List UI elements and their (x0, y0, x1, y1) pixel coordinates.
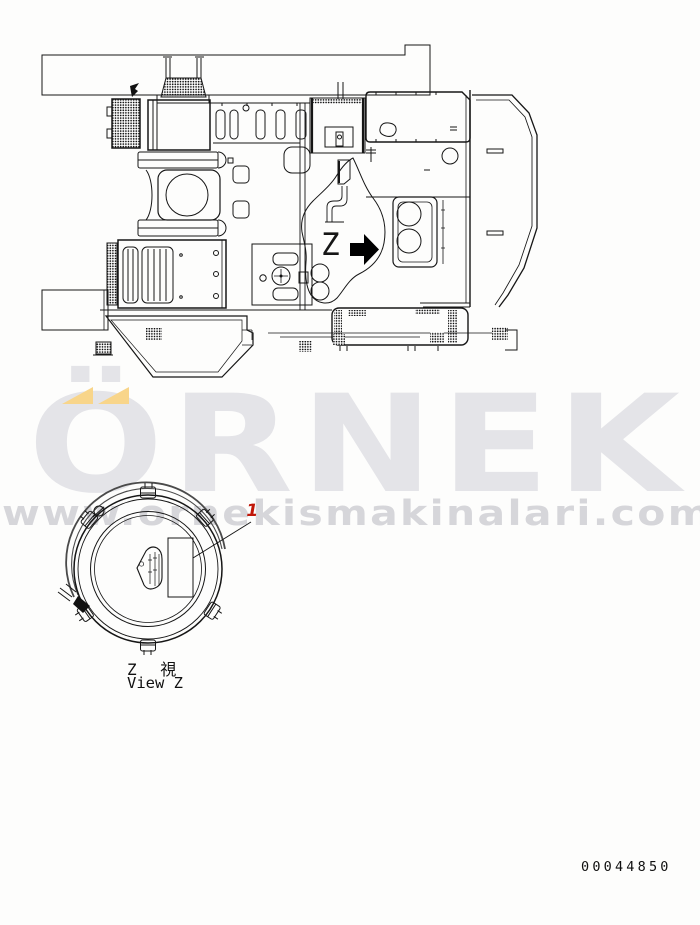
catalog-page: ÖRNEK www.ornekismakinalari.com.tr (0, 0, 700, 925)
item-1-plate (168, 538, 193, 597)
z-direction-arrow (350, 234, 379, 265)
brand-umlaut-triangle-right (98, 387, 129, 404)
technical-drawing (0, 0, 700, 925)
document-number: 00044850 (581, 859, 672, 875)
z-view-marker: Z (321, 227, 340, 263)
callout-leader-line (193, 522, 251, 558)
view-label-en: View Z (127, 674, 183, 692)
brand-umlaut-triangle-left (62, 387, 93, 404)
machine-top-view (42, 45, 537, 377)
view-z-detail (58, 482, 251, 655)
